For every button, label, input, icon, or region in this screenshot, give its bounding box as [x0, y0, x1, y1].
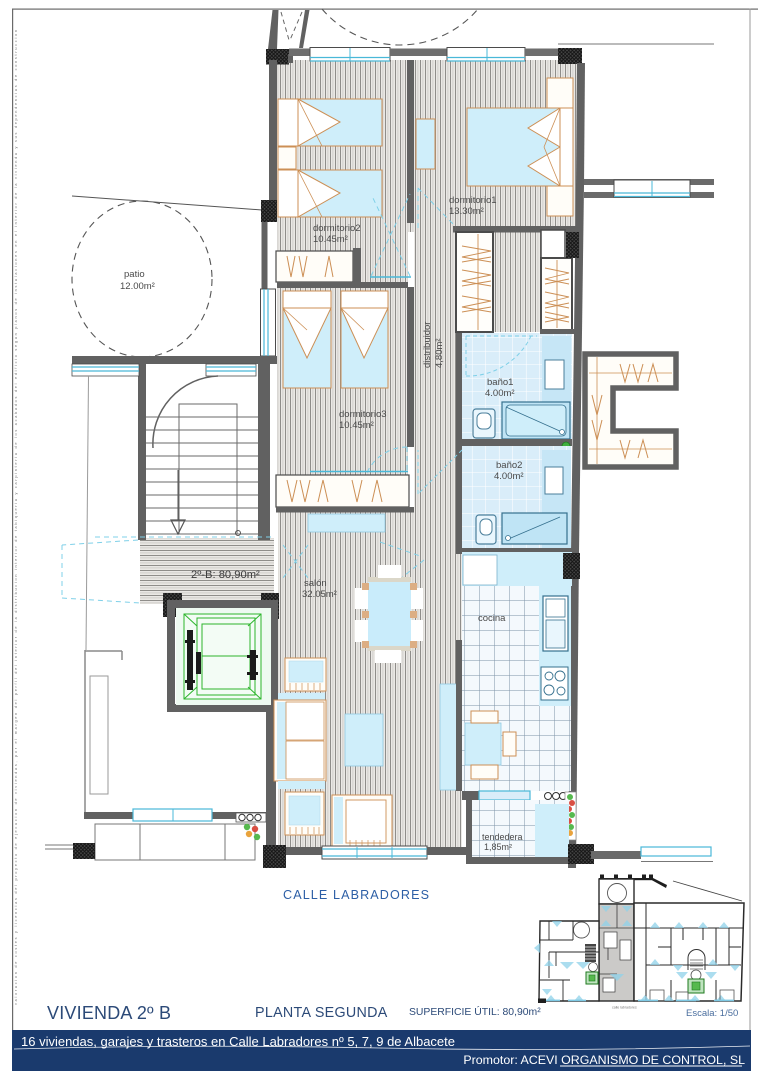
svg-text:32.05m²: 32.05m² [302, 589, 337, 600]
svg-text:2º-B: 80,90m²: 2º-B: 80,90m² [191, 569, 260, 581]
svg-text:VIVIENDA 2º B: VIVIENDA 2º B [47, 1003, 171, 1023]
svg-text:baño2: baño2 [496, 460, 522, 471]
svg-text:Escala: 1/50: Escala: 1/50 [686, 1008, 738, 1019]
svg-text:salón: salón [304, 578, 327, 589]
svg-text:calle labradores: calle labradores [612, 1006, 637, 1010]
svg-text:tendedera: tendedera [482, 832, 523, 842]
svg-text:Promotor: ACEVI ORGANISMO DE C: Promotor: ACEVI ORGANISMO DE CONTROL, SL [463, 1053, 745, 1067]
svg-text:baño1: baño1 [487, 377, 513, 388]
svg-text:dormitorio1: dormitorio1 [449, 195, 497, 206]
svg-text:distribuidor: distribuidor [422, 322, 433, 368]
svg-text:12.00m²: 12.00m² [120, 281, 155, 292]
svg-text:10.45m²: 10.45m² [339, 420, 374, 431]
svg-text:4.00m²: 4.00m² [485, 388, 515, 399]
svg-text:13.30m²: 13.30m² [449, 206, 484, 217]
svg-text:10.45m²: 10.45m² [313, 234, 348, 245]
svg-text:16 viviendas, garajes y traste: 16 viviendas, garajes y trasteros en Cal… [21, 1034, 455, 1049]
svg-text:SUPERFICIE ÚTIL: 80,90m²: SUPERFICIE ÚTIL: 80,90m² [409, 1005, 541, 1018]
svg-text:CALLE LABRADORES: CALLE LABRADORES [283, 888, 430, 902]
svg-text:cocina: cocina [478, 613, 506, 624]
svg-text:PLANTA SEGUNDA: PLANTA SEGUNDA [255, 1005, 388, 1021]
svg-text:4.00m²: 4.00m² [494, 471, 524, 482]
svg-text:1,85m²: 1,85m² [484, 842, 512, 852]
svg-text:4,80m²: 4,80m² [434, 338, 445, 368]
svg-text:dormitorio3: dormitorio3 [339, 409, 387, 420]
svg-text:dormitorio2: dormitorio2 [313, 223, 361, 234]
svg-text:valoracion de costes y licenci: valoracion de costes y licencias del pro… [14, 30, 18, 1005]
svg-text:patio: patio [124, 269, 145, 280]
